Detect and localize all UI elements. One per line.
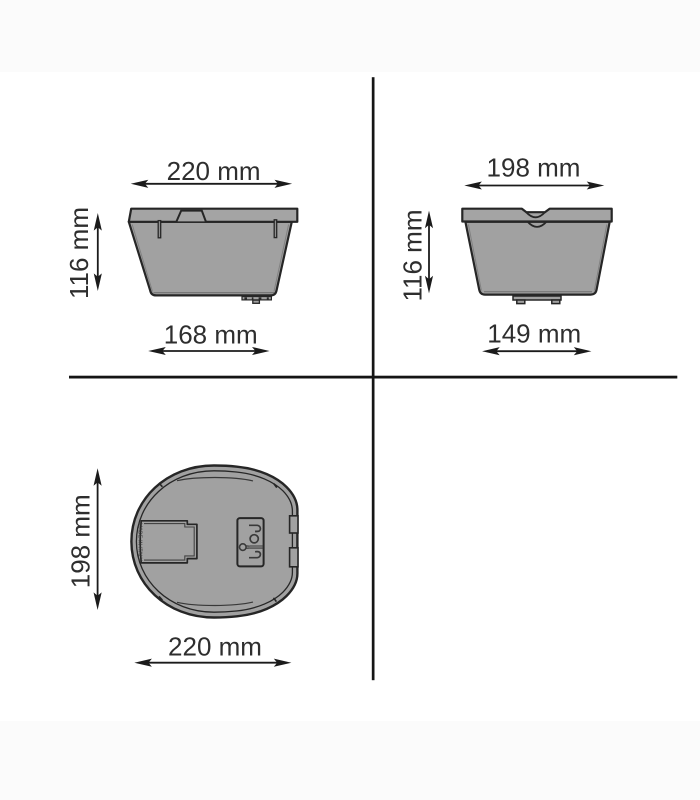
svg-text:198 mm: 198 mm: [66, 494, 96, 588]
svg-text:220 mm: 220 mm: [167, 156, 261, 186]
svg-text:198 mm: 198 mm: [487, 153, 581, 183]
svg-text:220 mm: 220 mm: [168, 632, 262, 662]
svg-text:MADE IN ITALY: MADE IN ITALY: [137, 523, 143, 561]
svg-text:168 mm: 168 mm: [164, 320, 258, 350]
svg-text:116 mm: 116 mm: [397, 210, 427, 302]
svg-text:149 mm: 149 mm: [487, 318, 581, 348]
svg-text:116 mm: 116 mm: [64, 207, 94, 299]
